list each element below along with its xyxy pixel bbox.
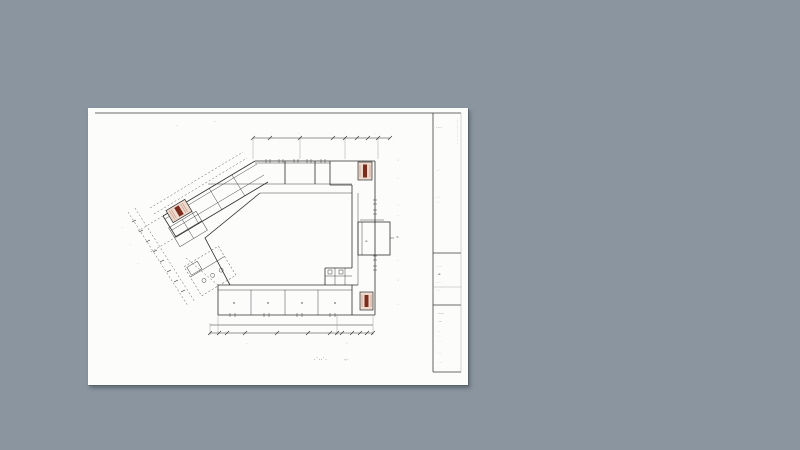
caption-title: ·˙··˙· — [314, 357, 327, 363]
dim-mark: ·˒ — [346, 341, 348, 345]
title-block-row: ·· ·˙ — [435, 195, 440, 199]
app-canvas[interactable]: · ···· ····· ··· ···· ·· ·· · ··· ···˙ ·… — [0, 0, 800, 450]
dim-mark: ·· — [246, 341, 248, 345]
title-block-row: ·· ··· — [436, 264, 442, 268]
dim-mark: ·˒ — [397, 158, 399, 162]
dim-mark: ‥ — [214, 119, 216, 123]
elevation-mark: ±· — [396, 235, 400, 239]
title-block-vertical-text: · ···· ····· ··· ···· ·· ·· — [456, 118, 460, 144]
dim-mark: ·· — [374, 131, 376, 135]
dim-mark: ·· — [397, 258, 399, 262]
courtyard-boundary — [205, 193, 260, 285]
dimension-bottom: ·· ·˒ — [208, 315, 375, 345]
dim-mark: ˙· — [397, 203, 400, 207]
dim-mark: ·· — [298, 131, 300, 135]
title-block-row: ˙ ·· — [435, 200, 439, 204]
dim-mark: ·· — [137, 261, 139, 265]
lower-annex — [184, 246, 236, 296]
fixture-box — [339, 270, 343, 274]
title-block-row: · ··· — [436, 126, 442, 130]
title-block-row: ˙·· — [438, 351, 441, 355]
dim-mark: ˙· — [129, 243, 132, 247]
stairwell-diagonal-wing — [166, 199, 192, 222]
bottom-wing-walls — [218, 285, 375, 315]
projection-dashed-lines — [138, 152, 247, 285]
caption-scale: ·:·· — [344, 358, 349, 362]
title-block-row: · ≡· — [436, 272, 441, 276]
drawing-caption: ·˙··˙· ·:·· — [314, 357, 349, 363]
dim-mark: ‥ — [176, 123, 178, 127]
entrance-label: ≡· — [365, 239, 369, 243]
dim-mark: ·· — [397, 302, 399, 306]
title-block-row: ·— — [438, 319, 442, 323]
dimension-right-marks: ·˒ ·· ˙· ·· ±· ·· ·˒ ·· — [396, 158, 400, 306]
title-block-row: —— — [438, 311, 444, 315]
title-block: · ···· ····· ··· ···· ·· ·· · ··· ···˙ ·… — [435, 118, 460, 364]
dim-mark: ·· — [397, 213, 399, 217]
title-block-row: · ·· — [436, 288, 440, 292]
title-block-row: ·· ·· — [436, 280, 441, 284]
stairwell-bottom-right — [360, 292, 373, 310]
title-block-row: · ·· — [438, 360, 442, 364]
dim-mark: ·· — [397, 176, 399, 180]
window-marks — [230, 159, 377, 317]
dim-mark: ·˒ — [397, 278, 399, 282]
drawing-sheet[interactable]: · ···· ····· ··· ···· ·· ·· · ··· ···˙ ·… — [88, 108, 468, 385]
title-block-row: ···˙ — [436, 168, 440, 172]
dim-mark: ˙ — [344, 131, 346, 135]
annotation-marks: ‥ ‥ — [176, 119, 216, 127]
entrance-porch: ≡· — [358, 220, 394, 255]
dim-mark: · — [254, 131, 255, 135]
fixture-box — [328, 270, 332, 274]
title-block-row: · · — [438, 339, 441, 343]
dim-mark: ˙ — [271, 131, 273, 135]
dim-mark: · — [331, 131, 332, 135]
title-block-row: ·· — [438, 329, 440, 333]
dimension-top: · ˙ ·· · ˙ · ·· — [251, 131, 392, 159]
floor-plan-drawing: · ···· ····· ··· ···· ·· ·· · ··· ···˙ ·… — [88, 108, 468, 385]
dim-mark: · — [356, 131, 357, 135]
stairwell-top-right — [358, 162, 372, 180]
dim-mark: ·· — [121, 225, 123, 229]
